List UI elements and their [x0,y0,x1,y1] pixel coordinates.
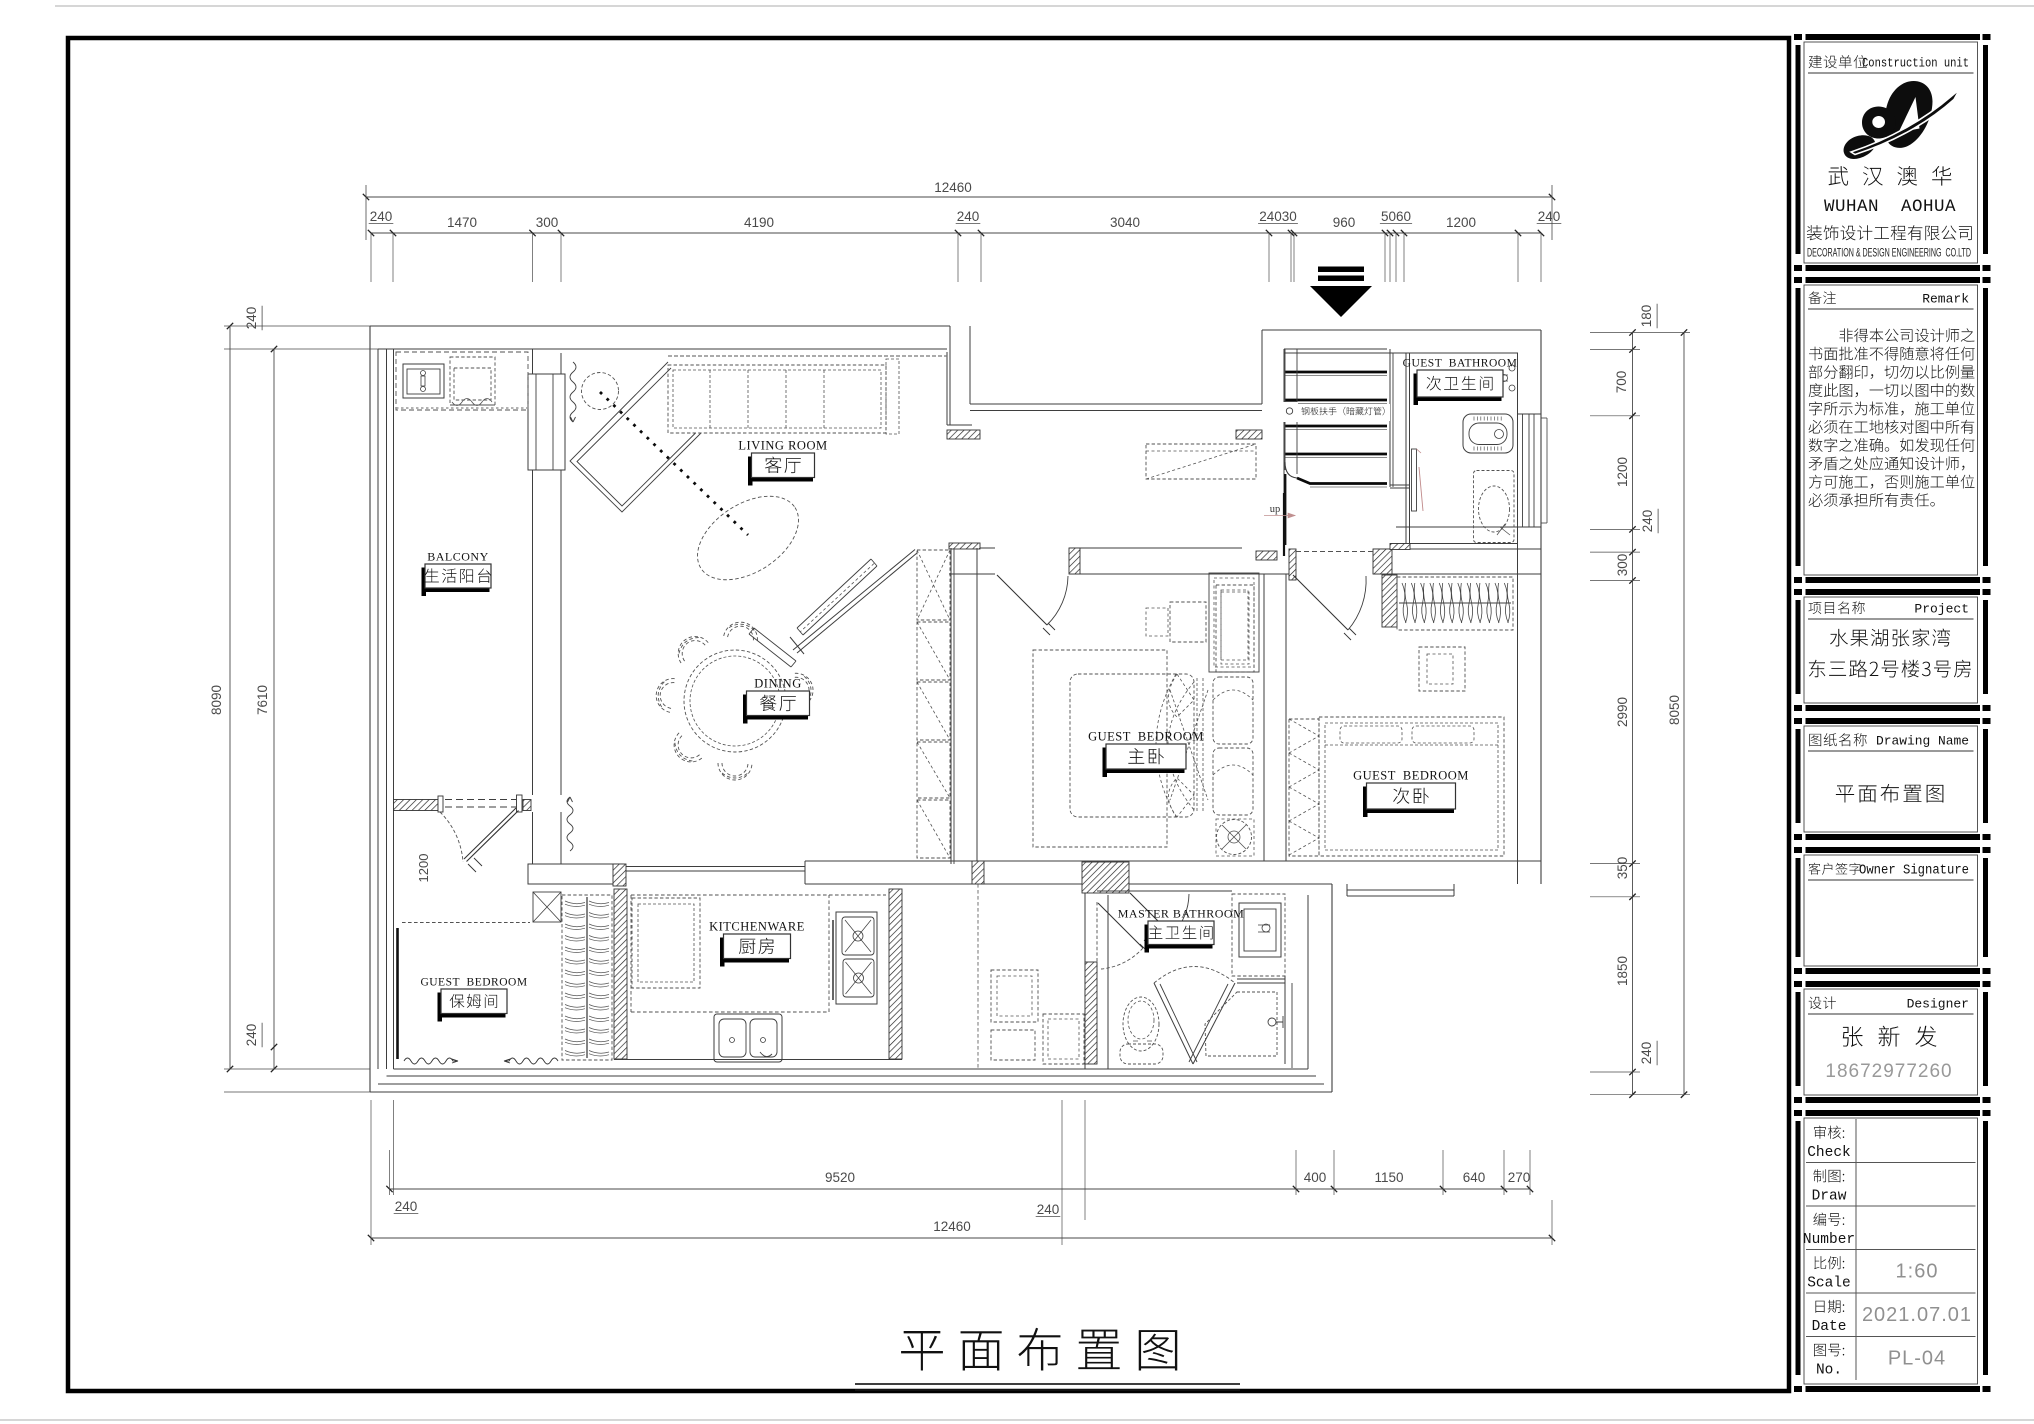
svg-text:BALCONY: BALCONY [427,550,489,564]
svg-text:300: 300 [1615,554,1630,577]
svg-text:2990: 2990 [1615,697,1630,727]
svg-text:300: 300 [536,215,559,230]
svg-text:GUEST BEDROOM: GUEST BEDROOM [1088,730,1204,744]
svg-text:GUEST BEDROOM: GUEST BEDROOM [420,977,527,989]
svg-text:960: 960 [1333,215,1356,230]
svg-text:3040: 3040 [1110,215,1140,230]
svg-text:350: 350 [1615,857,1630,880]
svg-text:640: 640 [1463,1170,1486,1185]
svg-text:240: 240 [957,209,980,224]
svg-text:Remark: Remark [1922,292,1969,307]
svg-text:240: 240 [244,1024,259,1047]
svg-text:1850: 1850 [1615,956,1630,986]
svg-text:8090: 8090 [209,685,224,715]
svg-text:DINING: DINING [754,677,801,691]
svg-text:1200: 1200 [1615,457,1630,487]
svg-text:240: 240 [1538,209,1561,224]
svg-text:PL-04: PL-04 [1888,1347,1946,1369]
svg-text:Drawing Name: Drawing Name [1876,734,1969,749]
svg-text:12460: 12460 [934,180,972,195]
svg-text:MASTER BATHROOM: MASTER BATHROOM [1118,907,1245,921]
svg-text:240: 240 [244,307,259,330]
svg-text:24030: 24030 [1259,209,1297,224]
svg-text:240: 240 [1037,1202,1060,1217]
svg-text:Draw: Draw [1812,1188,1847,1204]
svg-text:GUEST BATHROOM: GUEST BATHROOM [1403,358,1518,370]
svg-text:240: 240 [370,209,393,224]
svg-text:Designer: Designer [1907,997,1969,1012]
svg-text:1470: 1470 [447,215,477,230]
svg-text:8050: 8050 [1667,695,1682,725]
svg-text:GUEST BEDROOM: GUEST BEDROOM [1353,769,1469,783]
svg-text:270: 270 [1508,1170,1531,1185]
svg-text:Number: Number [1803,1232,1855,1248]
svg-text:180: 180 [1639,305,1654,328]
svg-text:7610: 7610 [255,685,270,715]
svg-text:WUHAN AOHUA: WUHAN AOHUA [1824,197,1956,217]
svg-text:2021.07.01: 2021.07.01 [1862,1304,1972,1326]
svg-text:1200: 1200 [1446,215,1476,230]
svg-text:240: 240 [1639,1042,1654,1065]
svg-text:Check: Check [1807,1145,1851,1161]
svg-text:240: 240 [1640,510,1655,533]
svg-text:240: 240 [395,1199,418,1214]
svg-text:Project: Project [1914,602,1969,617]
svg-text:Date: Date [1812,1319,1847,1335]
svg-text:400: 400 [1304,1170,1327,1185]
svg-text:700: 700 [1614,371,1629,394]
svg-text:1:60: 1:60 [1896,1260,1939,1282]
svg-text:LIVING ROOM: LIVING ROOM [738,439,827,453]
svg-text:Scale: Scale [1807,1275,1851,1291]
svg-text:12460: 12460 [933,1219,971,1234]
svg-text:1200: 1200 [416,854,431,883]
svg-text:No.: No. [1816,1362,1842,1378]
svg-text:Construction unit: Construction unit [1862,56,1969,71]
svg-text:1150: 1150 [1374,1170,1403,1185]
svg-text:DECORATION & DESIGN ENGINEERIN: DECORATION & DESIGN ENGINEERING CO.LTD [1807,248,1971,260]
svg-text:4190: 4190 [744,215,774,230]
svg-text:5060: 5060 [1381,209,1411,224]
svg-text:KITCHENWARE: KITCHENWARE [709,920,805,934]
svg-text:Owner Signature: Owner Signature [1859,864,1969,879]
svg-text:18672977260: 18672977260 [1825,1061,1952,1082]
svg-text:9520: 9520 [825,1170,855,1185]
svg-text:up: up [1270,504,1281,515]
